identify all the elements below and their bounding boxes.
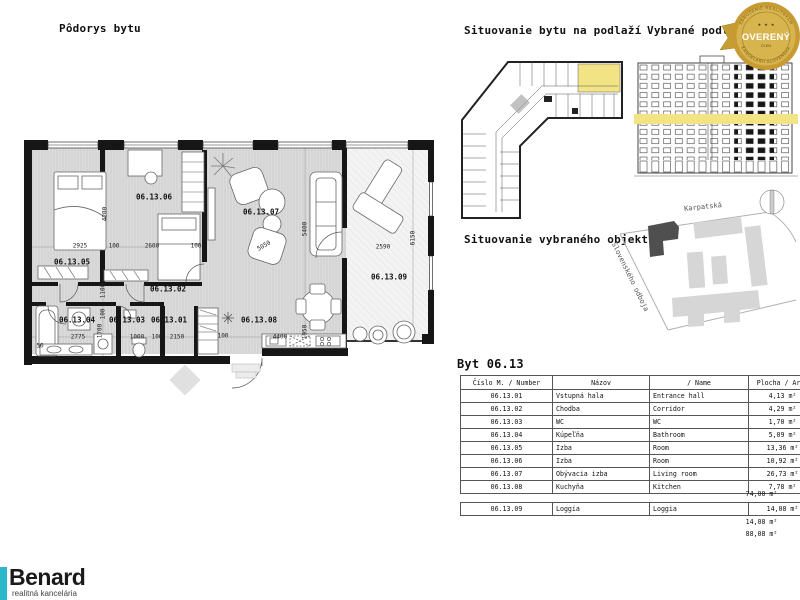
dimension: 2590 <box>376 244 390 251</box>
header-number: Číslo M. / Number <box>461 376 553 390</box>
dimension: 100 <box>109 243 120 250</box>
cell-area: 10,92 m² <box>749 455 800 468</box>
tv-board <box>208 188 215 240</box>
page-title: Pôdorys bytu <box>59 22 141 35</box>
table-row: 06.13.07 Obývacia izba Living room 26,73… <box>461 468 800 481</box>
table-row: 06.13.04 Kúpeľňa Bathroom 5,09 m² <box>461 429 800 442</box>
dimension: 4400 <box>273 334 287 341</box>
dimension: 2775 <box>71 334 85 341</box>
cell-area: 5,09 m² <box>749 429 800 442</box>
badge-main-text: OVERENÝ <box>742 31 791 43</box>
cell-number: 06.13.03 <box>461 416 553 429</box>
highlighted-floor <box>634 114 798 124</box>
cell-area: 1,70 m² <box>749 416 800 429</box>
dimension: 100 <box>100 309 107 320</box>
cell-number: 06.13.01 <box>461 390 553 403</box>
cell-area: 14,08 m² <box>749 503 800 516</box>
header-nazov: Názov <box>553 376 650 390</box>
apartment-title: Byt 06.13 <box>457 357 524 371</box>
loggia-table: 06.13.09 Loggia Loggia 14,08 m² <box>460 502 800 516</box>
entrance <box>169 364 260 396</box>
table-row: 06.13.06 Izba Room 10,92 m² <box>461 455 800 468</box>
table-row: 06.13.09 Loggia Loggia 14,08 m² <box>461 503 800 516</box>
cell-nazov: Izba <box>553 455 650 468</box>
cell-nazov: Vstupná hala <box>553 390 650 403</box>
cell-number: 06.13.05 <box>461 442 553 455</box>
desk <box>128 150 162 176</box>
dimension: 100 <box>152 334 163 341</box>
subtotal-interior: 74,00 m² <box>727 490 796 498</box>
cell-name: Room <box>650 455 749 468</box>
logo-subtitle: realitná kancelária <box>12 589 77 598</box>
cell-area: 4,13 m² <box>749 390 800 403</box>
room-label: 06.13.07 <box>243 208 279 217</box>
logo-name: Benard <box>9 564 85 591</box>
dimension: 1700 <box>97 324 104 338</box>
dimension: 1000 <box>130 334 144 341</box>
cell-number: 06.13.07 <box>461 468 553 481</box>
room-label: 06.13.09 <box>371 273 407 282</box>
room-label: 06.13.05 <box>54 258 90 267</box>
total-area: 88,08 m² <box>727 530 796 538</box>
cell-nazov: Chodba <box>553 403 650 416</box>
badge-stars: ★ ★ ★ <box>758 22 775 28</box>
cell-name: WC <box>650 416 749 429</box>
cell-nazov: Loggia <box>553 503 650 516</box>
table-row: 06.13.03 WC WC 1,70 m² <box>461 416 800 429</box>
header-area: Plocha / Area <box>749 376 800 390</box>
cell-name: Loggia <box>650 503 749 516</box>
building-elevation <box>634 56 798 182</box>
selected-building <box>648 221 679 257</box>
dimension: 6150 <box>410 231 417 245</box>
dimension: 2600 <box>145 243 159 250</box>
cell-name: Corridor <box>650 403 749 416</box>
verified-badge: ZDRUŽENIE REALITNÝCH KANCELÁRIÍ SLOVENSK… <box>710 0 800 74</box>
cell-number: 06.13.09 <box>461 503 553 516</box>
dimension: 1950 <box>302 325 309 339</box>
cell-nazov: Izba <box>553 442 650 455</box>
badge-member-text: ČLEN <box>761 43 771 48</box>
dimension: 2925 <box>73 243 87 250</box>
dimension: 2150 <box>170 334 184 341</box>
entrance-marker <box>169 364 200 395</box>
cell-number: 06.13.04 <box>461 429 553 442</box>
room-label: 06.13.06 <box>136 193 172 202</box>
room-label: 06.13.04 <box>59 316 95 325</box>
cell-nazov: Kúpeľňa <box>553 429 650 442</box>
cell-nazov: Obývacia izba <box>553 468 650 481</box>
table-row: 06.13.02 Chodba Corridor 4,29 m² <box>461 403 800 416</box>
table-row: 06.13.05 Izba Room 13,36 m² <box>461 442 800 455</box>
cell-name: Living room <box>650 468 749 481</box>
cell-name: Bathroom <box>650 429 749 442</box>
room-label: 06.13.01 <box>151 316 187 325</box>
wardrobe <box>38 266 88 279</box>
room-label: 06.13.08 <box>241 316 277 325</box>
cell-number: 06.13.06 <box>461 455 553 468</box>
unit-location-plan <box>456 56 628 224</box>
cell-area: 26,73 m² <box>749 468 800 481</box>
dimension: 100 <box>191 243 202 250</box>
section-title-floor-location: Situovanie bytu na podlaží <box>464 24 641 37</box>
room-label: 06.13.03 <box>109 316 145 325</box>
listing-sheet: Pôdorys bytu Situovanie bytu na podlaží … <box>0 0 800 600</box>
north-arrow-icon <box>760 190 784 214</box>
cell-number: 06.13.02 <box>461 403 553 416</box>
cell-area: 4,29 m² <box>749 403 800 416</box>
table-header-row: Číslo M. / Number Názov / Name Plocha / … <box>461 376 800 390</box>
header-name: / Name <box>650 376 749 390</box>
cell-nazov: WC <box>553 416 650 429</box>
logo-mark <box>0 567 7 600</box>
cell-nazov: Kuchyňa <box>553 481 650 494</box>
cell-area: 13,36 m² <box>749 442 800 455</box>
cell-name: Entrance hall <box>650 390 749 403</box>
highlighted-unit <box>578 64 620 92</box>
dark-facade-section <box>746 63 774 160</box>
cell-name: Room <box>650 442 749 455</box>
dimension: 50 <box>36 343 43 350</box>
dimension: 4200 <box>102 207 109 221</box>
chair <box>145 172 157 184</box>
table-row: 06.13.01 Vstupná hala Entrance hall 4,13… <box>461 390 800 403</box>
dimension: 5400 <box>302 222 309 236</box>
pot <box>353 327 367 341</box>
dimension: 100 <box>218 333 229 340</box>
room-table: Číslo M. / Number Názov / Name Plocha / … <box>460 375 800 494</box>
dimension: 1100 <box>100 284 107 298</box>
cell-number: 06.13.08 <box>461 481 553 494</box>
room-label: 06.13.02 <box>150 285 186 294</box>
subtotal-loggia: 14,08 m² <box>727 518 796 526</box>
